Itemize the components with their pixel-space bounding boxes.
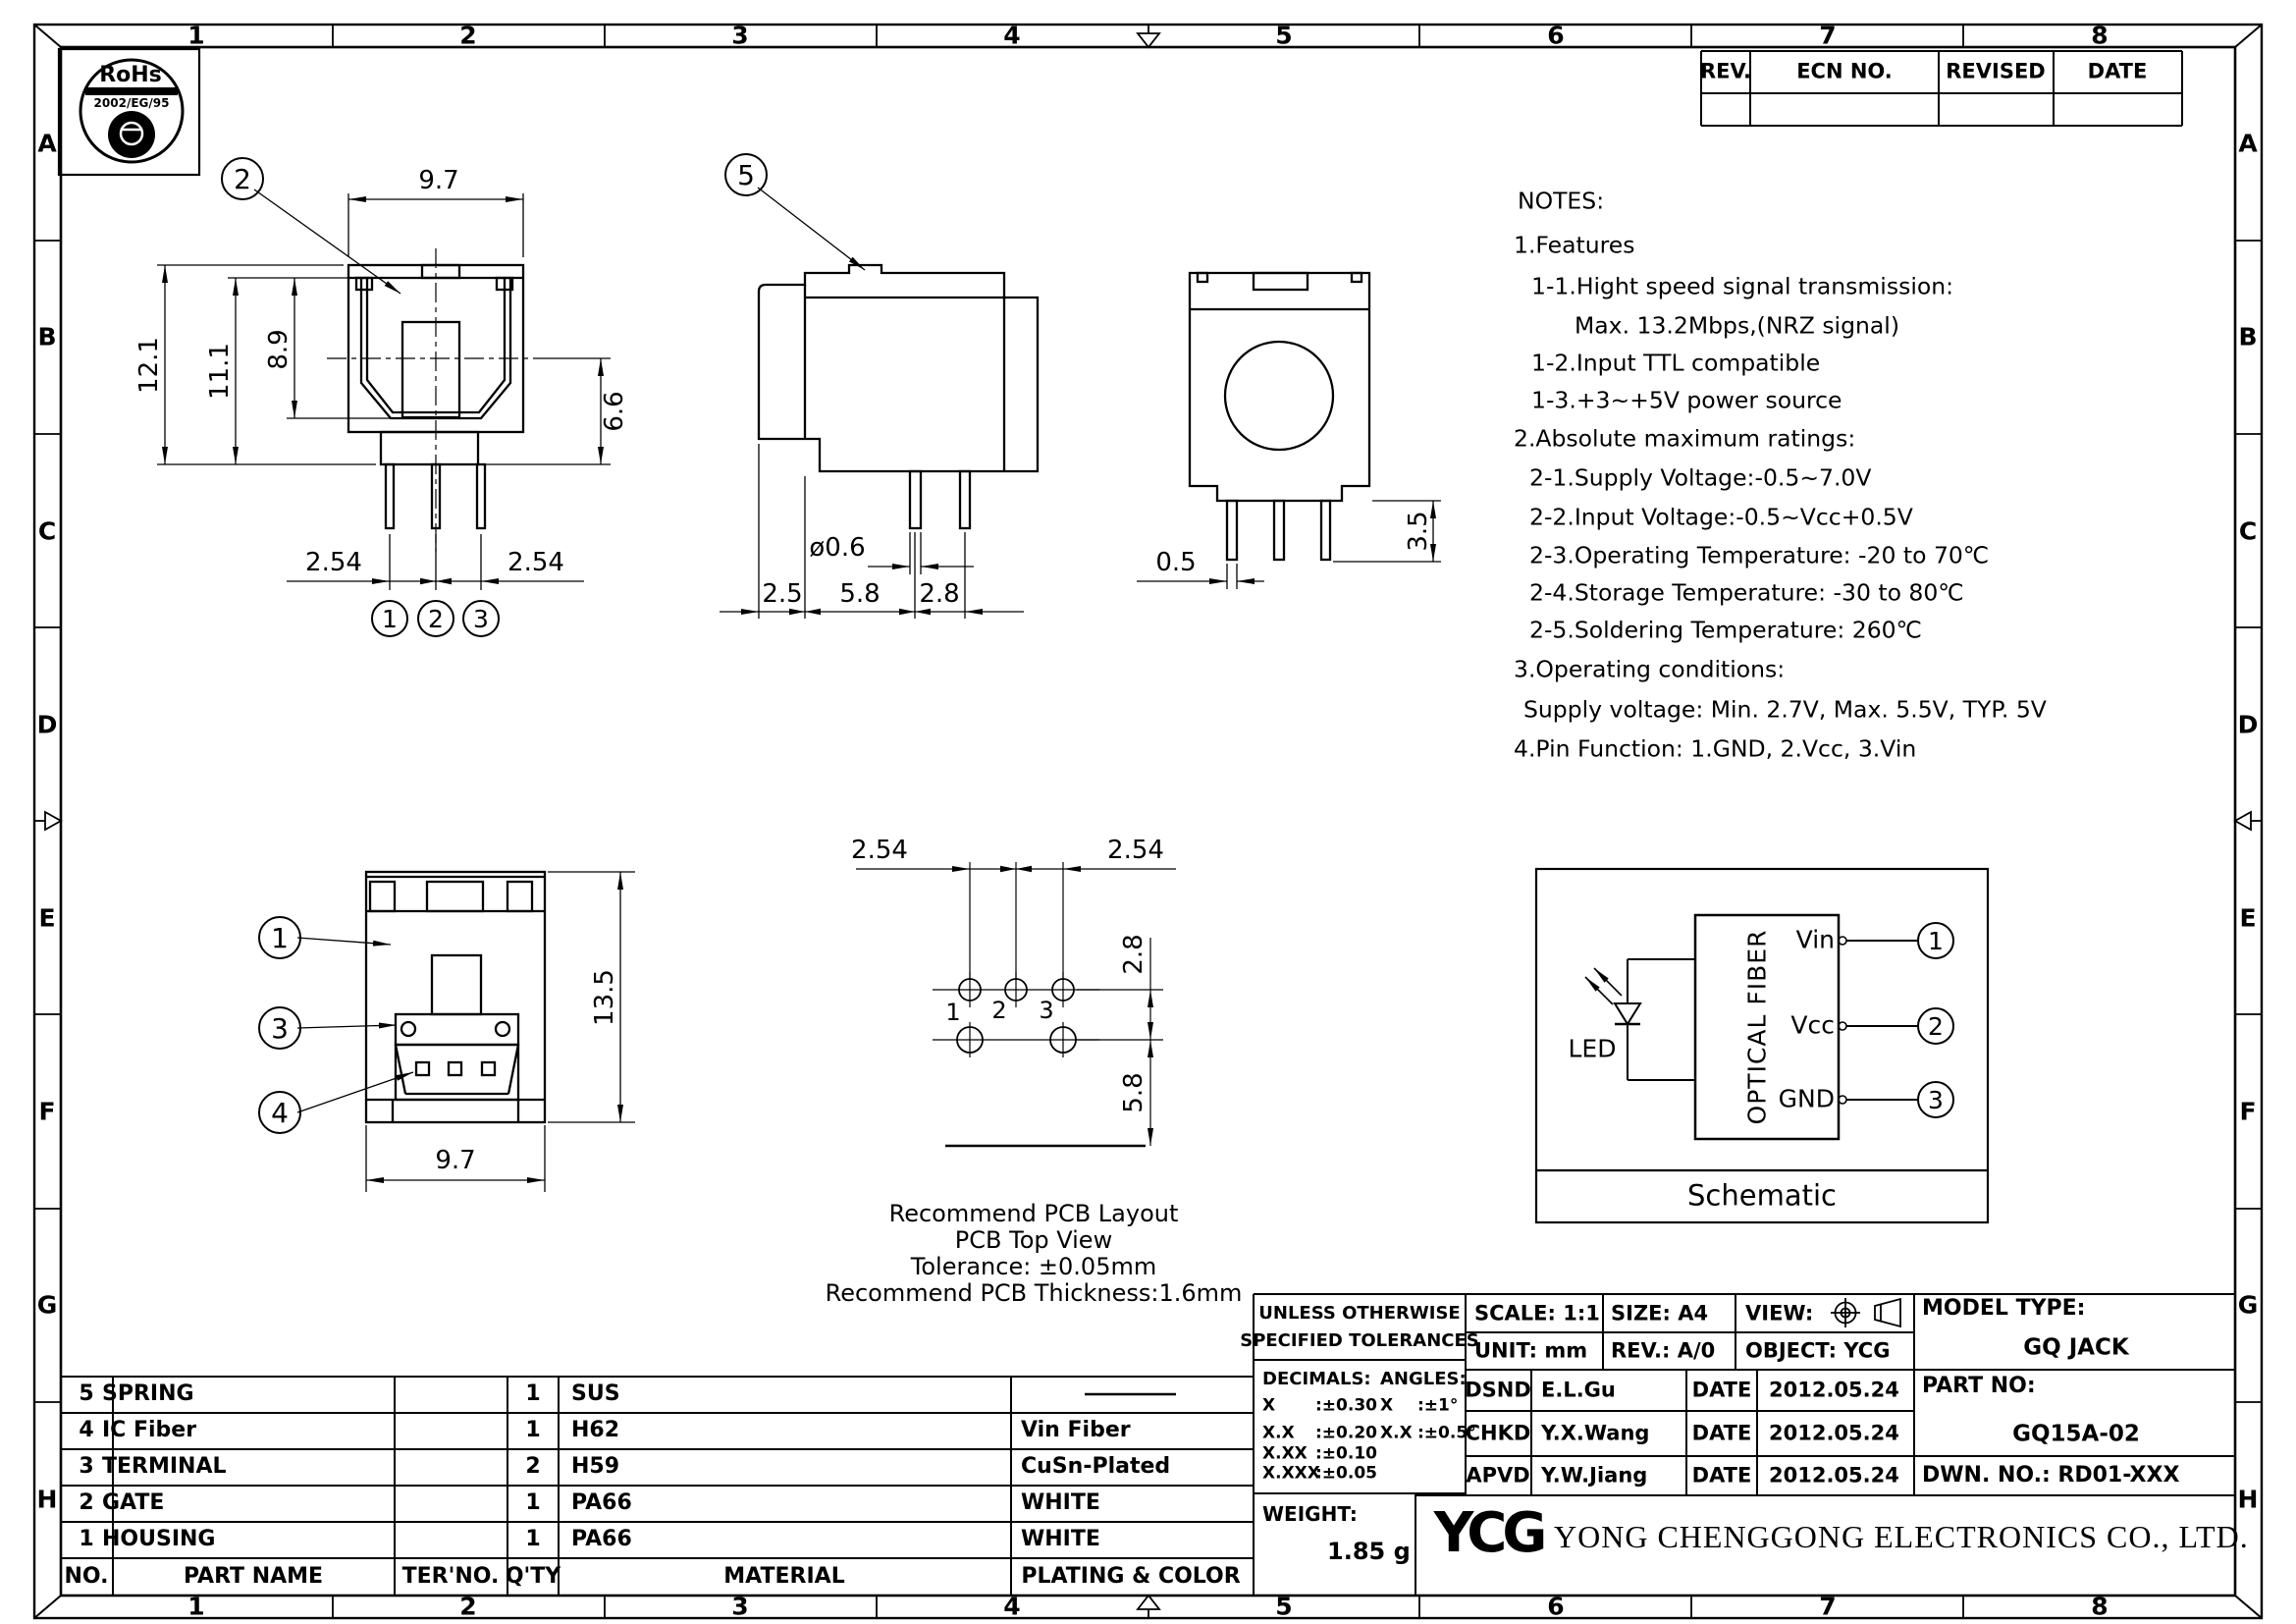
pcb-pin-label-1: 1 <box>945 1001 960 1024</box>
part-name: SPRING <box>102 1383 194 1405</box>
part-material: PA66 <box>571 1492 632 1514</box>
decimal-tol-key: X.XXX <box>1262 1466 1320 1483</box>
grid-row-label: A <box>2238 132 2257 156</box>
signoff-date: 2012.05.24 <box>1769 1380 1899 1401</box>
note-line: 1.Features <box>1514 234 1634 257</box>
part-no: 3 <box>79 1456 93 1478</box>
dim-pcb-pitch-right: 2.54 <box>1107 838 1164 863</box>
dim-front-pitch-right: 2.54 <box>507 550 564 575</box>
dim-side-row-gap: 2.8 <box>919 581 959 607</box>
dim-back-pin-width: 0.5 <box>1155 550 1196 575</box>
signoff-date-label: DATE <box>1692 1424 1752 1444</box>
part-material: H62 <box>571 1420 619 1441</box>
part-no: 1 <box>79 1529 93 1550</box>
led-label: LED <box>1569 1037 1617 1061</box>
pcb-caption-line: PCB Top View <box>955 1228 1112 1252</box>
part-qty: 1 <box>525 1492 540 1514</box>
grid-row-label: H <box>2238 1488 2259 1512</box>
unit-value: mm <box>1544 1339 1587 1363</box>
schematic-caption: Schematic <box>1687 1182 1837 1211</box>
grid-col-label: 3 <box>731 24 748 48</box>
object-field: OBJECT: YCG <box>1745 1341 1890 1362</box>
scale-label: SCALE: <box>1474 1302 1556 1326</box>
part-plating: CuSn-Plated <box>1021 1456 1170 1478</box>
model-type-label: MODEL TYPE: <box>1922 1298 2085 1320</box>
parts-header-ter: TER'NO. <box>402 1566 500 1588</box>
rev-label: REV.: <box>1611 1339 1670 1363</box>
pcb-pin-label-2: 2 <box>991 999 1006 1022</box>
grid-row-label: D <box>2238 713 2259 737</box>
size-field: SIZE: A4 <box>1611 1304 1708 1325</box>
company-name: YONG CHENGGONG ELECTRONICS CO., LTD. <box>1554 1521 2249 1552</box>
weight-value: 1.85 g <box>1327 1540 1411 1563</box>
grid-col-label: 7 <box>1819 1595 1836 1619</box>
grid-col-label: 3 <box>731 1595 748 1619</box>
callout-balloon-3: 3 <box>258 1006 301 1050</box>
angle-tol-key: X <box>1380 1398 1393 1415</box>
dim-side-front-gap: 5.8 <box>839 581 880 607</box>
note-line: 2-4.Storage Temperature: -30 to 80℃ <box>1529 581 1964 605</box>
pin-balloon-3: 3 <box>462 600 500 637</box>
grid-col-label: 6 <box>1547 24 1564 48</box>
revised-header: REVISED <box>1946 62 2045 82</box>
callout-balloon-5: 5 <box>724 153 768 196</box>
pin-balloon-1: 1 <box>371 600 408 637</box>
back-view-drawing <box>1137 273 1441 589</box>
decimals-label: DECIMALS: <box>1262 1371 1371 1388</box>
note-line: 4.Pin Function: 1.GND, 2.Vcc, 3.Vin <box>1514 737 1916 761</box>
dim-bottom-height: 13.5 <box>592 969 617 1026</box>
grid-row-label: B <box>37 325 56 350</box>
grid-col-label: 5 <box>1275 1595 1292 1619</box>
dim-front-height-lower: 6.6 <box>602 391 627 431</box>
note-line: 2-5.Soldering Temperature: 260℃ <box>1529 619 1922 642</box>
parts-header-no: NO. <box>65 1566 109 1588</box>
part-no: 4 <box>79 1420 93 1441</box>
part-no: 2 <box>79 1492 93 1514</box>
unit-label: UNIT: <box>1474 1339 1537 1363</box>
decimal-tol-val: :±0.30 <box>1315 1398 1377 1415</box>
part-qty: 1 <box>525 1529 540 1550</box>
part-no: 5 <box>79 1383 93 1405</box>
parts-header-plating: PLATING & COLOR <box>1021 1566 1240 1588</box>
grid-col-label: 8 <box>2091 24 2108 48</box>
rev-value: A/0 <box>1678 1339 1716 1363</box>
dim-front-width: 9.7 <box>418 168 458 193</box>
part-qty: 1 <box>525 1383 540 1405</box>
grid-row-label: F <box>38 1100 55 1124</box>
decimal-tol-val: :±0.05 <box>1315 1466 1377 1483</box>
part-plating: Vin Fiber <box>1021 1420 1131 1441</box>
callout-number: 3 <box>271 1012 289 1045</box>
parts-table-grid <box>61 1377 1254 1596</box>
note-line: 1-1.Hight speed signal transmission: <box>1531 275 1953 298</box>
dim-back-pin-length: 3.5 <box>1406 511 1431 551</box>
schematic-pin-balloon-3: 3 <box>1917 1081 1954 1118</box>
grid-row-label: G <box>2238 1293 2259 1318</box>
signoff-name: Y.X.Wang <box>1541 1424 1649 1444</box>
schematic-pin-vin: Vin <box>1796 928 1835 952</box>
callout-number: 2 <box>234 163 251 195</box>
parts-header-qty: Q'TY <box>506 1566 561 1588</box>
dwn-no: DWN. NO.: RD01-XXX <box>1922 1465 2179 1487</box>
side-view-drawing <box>720 188 1038 619</box>
dim-side-pin-dia: ø0.6 <box>809 535 865 561</box>
dim-front-height-body: 11.1 <box>207 343 233 400</box>
size-value: A4 <box>1678 1302 1708 1326</box>
parts-header-material: MATERIAL <box>723 1566 844 1588</box>
signoff-role: CHKD <box>1466 1424 1531 1444</box>
projection-view-symbols <box>1831 1298 1900 1327</box>
grid-row-label: E <box>2239 906 2256 931</box>
rohs-label: RoHs <box>99 65 162 86</box>
note-line: 2.Absolute maximum ratings: <box>1514 427 1855 451</box>
grid-col-label: 6 <box>1547 1595 1564 1619</box>
angle-tol-val: :±1° <box>1417 1398 1458 1415</box>
grid-col-label: 5 <box>1275 24 1292 48</box>
decimal-tol-val: :±0.10 <box>1315 1446 1377 1463</box>
grid-row-label: C <box>38 519 56 544</box>
part-name: GATE <box>102 1492 164 1514</box>
grid-col-label: 1 <box>187 1595 204 1619</box>
part-name: HOUSING <box>102 1529 215 1550</box>
pcb-caption-line: Recommend PCB Layout <box>889 1202 1179 1225</box>
signoff-name: Y.W.Jiang <box>1541 1466 1647 1487</box>
callout-balloon-4: 4 <box>258 1091 301 1134</box>
ecn-no-header: ECN NO. <box>1796 62 1893 82</box>
dim-front-pitch-left: 2.54 <box>305 550 362 575</box>
model-type-value: GQ JACK <box>2023 1337 2129 1360</box>
scale-field: SCALE: 1:1 <box>1474 1304 1600 1325</box>
note-line: 2-2.Input Voltage:-0.5~Vcc+0.5V <box>1529 506 1913 529</box>
note-line: 2-3.Operating Temperature: -20 to 70℃ <box>1529 544 1989 568</box>
grid-row-label: C <box>2239 519 2257 544</box>
note-line: 3.Operating conditions: <box>1514 658 1785 681</box>
object-value: YCG <box>1843 1339 1890 1363</box>
pin-number: 1 <box>382 605 398 633</box>
engineering-drawing-sheet: 1 2 3 4 5 6 7 8 1 2 3 4 5 6 7 8 A B C D … <box>0 0 2296 1624</box>
signoff-role: APVD <box>1466 1466 1529 1487</box>
optical-fiber-label: OPTICAL FIBER <box>1745 930 1770 1125</box>
schematic-pin-gnd: GND <box>1779 1087 1835 1111</box>
grid-row-label: E <box>38 906 55 931</box>
pcb-pin-label-3: 3 <box>1039 999 1053 1022</box>
callout-number: 4 <box>271 1097 289 1129</box>
callout-number: 5 <box>737 159 755 191</box>
note-line: 1-2.Input TTL compatible <box>1531 352 1820 375</box>
bottom-view-drawing <box>297 872 635 1192</box>
pin-balloon-2: 2 <box>417 600 454 637</box>
scale-value: 1:1 <box>1563 1302 1600 1326</box>
part-no-label: PART NO: <box>1922 1376 2036 1397</box>
signoff-date-label: DATE <box>1692 1466 1752 1487</box>
note-line: 1-3.+3~+5V power source <box>1531 389 1842 412</box>
part-material: PA66 <box>571 1529 632 1550</box>
dim-pcb-pitch-left: 2.54 <box>851 838 908 863</box>
dim-front-height-opening: 8.9 <box>266 329 292 369</box>
callout-balloon-1: 1 <box>258 916 301 959</box>
signoff-date-label: DATE <box>1692 1380 1752 1401</box>
part-plating: WHITE <box>1021 1529 1100 1550</box>
part-qty: 2 <box>525 1456 540 1478</box>
grid-row-label: D <box>37 713 58 737</box>
grid-row-label: H <box>37 1488 58 1512</box>
signoff-role: DSND <box>1465 1380 1531 1401</box>
grid-col-label: 4 <box>1003 24 1020 48</box>
part-name: TERMINAL <box>102 1456 227 1478</box>
dim-bottom-width: 9.7 <box>435 1148 475 1173</box>
size-label: SIZE: <box>1611 1302 1671 1326</box>
grid-col-label: 7 <box>1819 24 1836 48</box>
parts-header-name: PART NAME <box>184 1566 323 1588</box>
schematic-pin-vcc: Vcc <box>1790 1013 1835 1038</box>
decimal-tol-key: X <box>1262 1398 1275 1415</box>
tolerance-note-line1: UNLESS OTHERWISE <box>1258 1305 1460 1323</box>
note-line: Supply voltage: Min. 2.7V, Max. 5.5V, TY… <box>1523 698 2047 722</box>
schematic-pin-balloon-1: 1 <box>1917 922 1954 959</box>
dim-front-height-total: 12.1 <box>136 337 162 394</box>
part-plating: WHITE <box>1021 1492 1100 1514</box>
company-logo: YCG <box>1434 1506 1543 1561</box>
signoff-date: 2012.05.24 <box>1769 1424 1899 1444</box>
grid-col-label: 8 <box>2091 1595 2108 1619</box>
pin-number: 2 <box>1928 1012 1944 1041</box>
weight-label: WEIGHT: <box>1262 1504 1358 1524</box>
grid-col-label: 2 <box>459 1595 476 1619</box>
view-label: VIEW: <box>1745 1304 1813 1325</box>
callout-number: 1 <box>271 922 289 954</box>
grid-row-label: B <box>2238 325 2257 350</box>
part-material: H59 <box>571 1456 619 1478</box>
pcb-caption-line: Tolerance: ±0.05mm <box>911 1255 1156 1278</box>
grid-col-label: 2 <box>459 24 476 48</box>
grid-row-label: G <box>37 1293 58 1318</box>
tolerance-note-line2: SPECIFIED TOLERANCES <box>1240 1332 1479 1350</box>
part-name: IC Fiber <box>102 1420 196 1441</box>
object-label: OBJECT: <box>1745 1339 1837 1363</box>
rev-header: REV. <box>1700 62 1751 82</box>
decimal-tol-key: X.X <box>1262 1426 1295 1442</box>
notes-title: NOTES: <box>1518 189 1604 213</box>
rohs-standard: 2002/EG/95 <box>94 97 170 109</box>
decimal-tol-key: X.XX <box>1262 1446 1308 1463</box>
angle-tol-key: X.X <box>1380 1426 1413 1442</box>
signoff-name: E.L.Gu <box>1541 1380 1616 1401</box>
signoff-date: 2012.05.24 <box>1769 1466 1899 1487</box>
note-line: Max. 13.2Mbps,(NRZ signal) <box>1575 314 1899 338</box>
part-no-value: GQ15A-02 <box>2012 1424 2140 1446</box>
part-qty: 1 <box>525 1420 540 1441</box>
pin-number: 3 <box>1928 1086 1944 1114</box>
grid-row-label: F <box>2239 1100 2256 1124</box>
callout-balloon-2: 2 <box>221 157 264 200</box>
dim-side-flange: 2.5 <box>762 581 802 607</box>
part-material: SUS <box>571 1383 620 1405</box>
grid-col-label: 4 <box>1003 1595 1020 1619</box>
dim-pcb-edge-gap: 5.8 <box>1121 1072 1147 1112</box>
grid-row-label: A <box>37 132 56 156</box>
dim-pcb-row-gap: 2.8 <box>1121 934 1147 974</box>
grid-col-label: 1 <box>187 24 204 48</box>
unit-field: UNIT: mm <box>1474 1341 1587 1362</box>
pcb-caption-line: Recommend PCB Thickness:1.6mm <box>826 1281 1243 1305</box>
pin-number: 3 <box>473 605 489 633</box>
rev-field: REV.: A/0 <box>1611 1341 1715 1362</box>
date-header: DATE <box>2088 62 2148 82</box>
note-line: 2-1.Supply Voltage:-0.5~7.0V <box>1529 466 1871 490</box>
pin-number: 1 <box>1928 927 1944 955</box>
decimal-tol-val: :±0.20 <box>1315 1426 1377 1442</box>
schematic-pin-balloon-2: 2 <box>1917 1007 1954 1045</box>
angles-label: ANGLES: <box>1380 1371 1467 1388</box>
pin-number: 2 <box>428 605 444 633</box>
